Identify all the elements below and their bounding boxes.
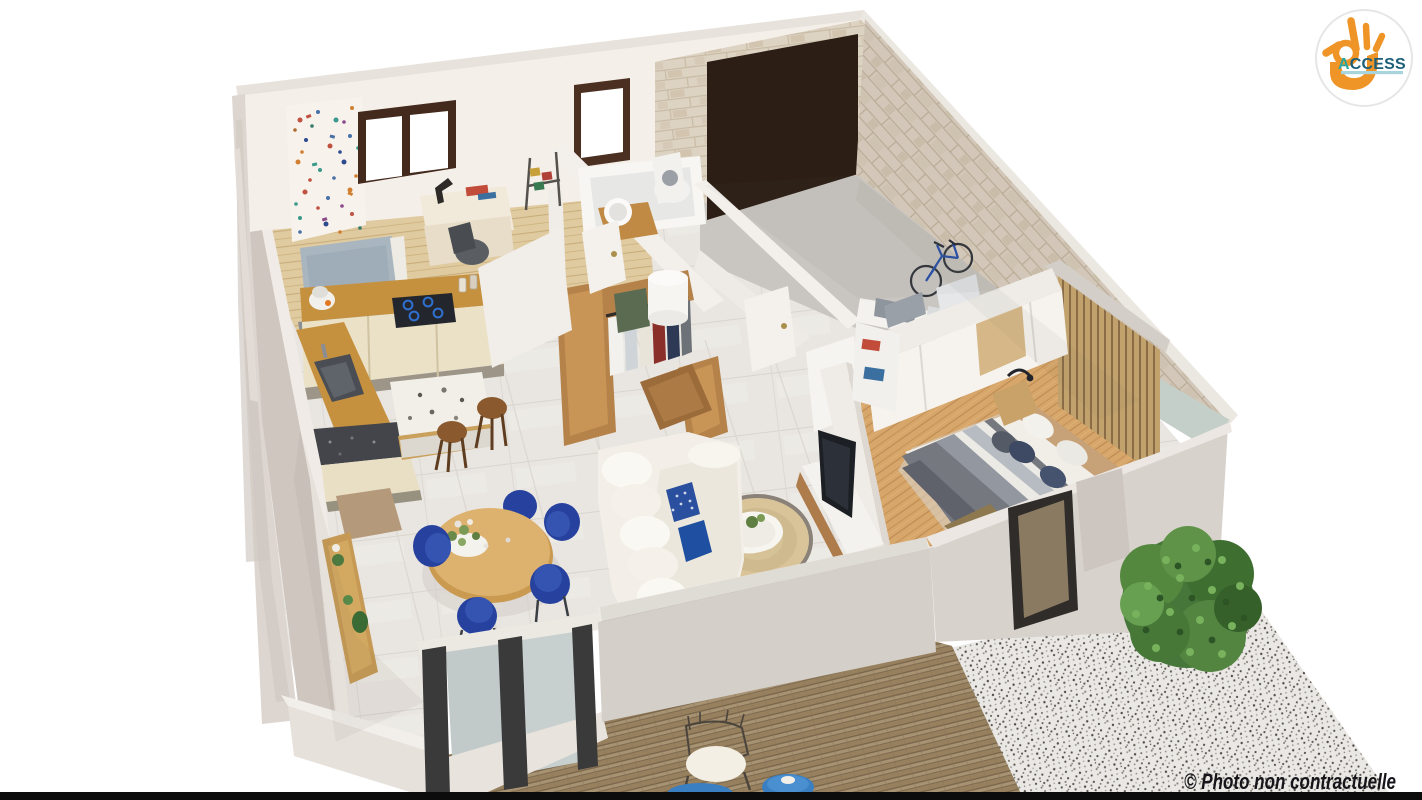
svg-text:ACCESS: ACCESS <box>1338 56 1406 73</box>
svg-text:© Photo non contractuelle: © Photo non contractuelle <box>1184 769 1396 794</box>
